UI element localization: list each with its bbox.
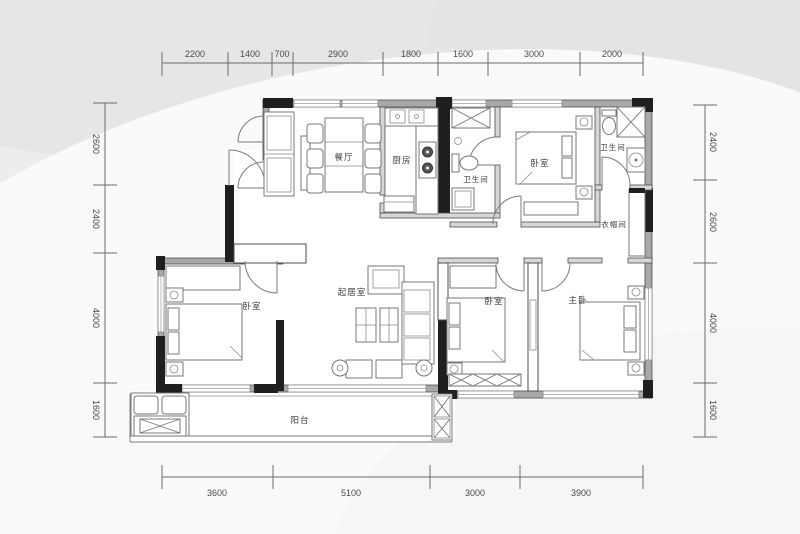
dim-left: 2600 2400 4000 1600 — [91, 103, 117, 437]
dim-left-0: 2600 — [91, 134, 101, 154]
dim-top-1: 1400 — [240, 49, 260, 59]
master-label: 主卧 — [568, 295, 587, 305]
dim-top-3: 2900 — [328, 49, 348, 59]
dim-left-3: 1600 — [91, 400, 101, 420]
dim-top-5: 1600 — [453, 49, 473, 59]
cloakroom-label: 衣帽间 — [601, 219, 627, 229]
bath2-label: 卫生间 — [600, 142, 626, 152]
dim-left-2: 4000 — [91, 308, 101, 328]
dim-right-3: 1600 — [708, 400, 718, 420]
kitchen-label: 厨房 — [392, 155, 411, 165]
dim-top-0: 2200 — [185, 49, 205, 59]
room-dining: 餐厅 — [264, 112, 381, 196]
bedroom-top-label: 卧室 — [530, 158, 549, 168]
dim-bottom-1: 5100 — [341, 488, 361, 498]
floorplan-page: 餐厅 厨房 卫生间 — [0, 0, 800, 534]
dim-bottom-0: 3600 — [207, 488, 227, 498]
floor-plan-drawing: 餐厅 厨房 卫生间 — [0, 0, 800, 534]
dining-label: 餐厅 — [334, 152, 353, 162]
dim-right-2: 4000 — [708, 313, 718, 333]
living-label: 起居室 — [338, 287, 367, 297]
dim-right-1: 2600 — [708, 212, 718, 232]
bath1-label: 卫生间 — [463, 174, 489, 184]
dim-top: 2200 1400 700 2900 1800 1600 3000 2000 — [162, 49, 643, 76]
dim-bottom-3: 3900 — [571, 488, 591, 498]
dim-top-6: 3000 — [524, 49, 544, 59]
room-kitchen: 厨房 — [384, 108, 438, 214]
dim-left-1: 2400 — [91, 209, 101, 229]
bedroom-left-label: 卧室 — [242, 301, 261, 311]
dim-top-2: 700 — [274, 49, 289, 59]
dim-top-7: 2000 — [602, 49, 622, 59]
bedroom-mid-label: 卧室 — [484, 296, 503, 306]
dim-top-4: 1800 — [401, 49, 421, 59]
dim-bottom-2: 3000 — [465, 488, 485, 498]
dim-right: 2400 2600 4000 1600 — [693, 105, 718, 437]
dim-bottom: 3600 5100 3000 3900 — [162, 465, 643, 498]
dim-right-0: 2400 — [708, 132, 718, 152]
balcony-label: 阳台 — [290, 415, 309, 425]
